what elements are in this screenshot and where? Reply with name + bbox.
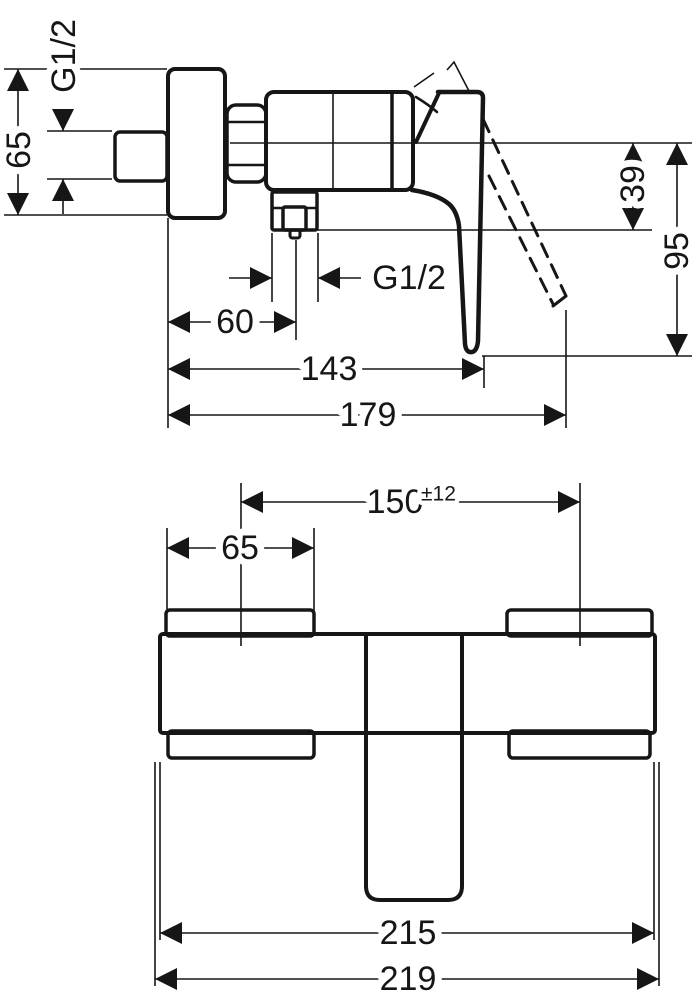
technical-drawing: G1/2 65 39 95 G1/2 60 143 [0, 0, 696, 1000]
dimension-center-distance: 150 ±12 [241, 483, 580, 522]
drawing-page: G1/2 65 39 95 G1/2 60 143 [0, 0, 696, 1000]
dim-label-150: 150 [367, 483, 424, 521]
mixer-body-bar [160, 634, 655, 733]
dim-label-150-tolerance: ±12 [421, 483, 456, 506]
dim-label-65-front: 65 [221, 529, 259, 567]
valve-body [266, 92, 413, 190]
dimension-total-depth: 179 [168, 396, 566, 434]
dimension-depth-to-handle: 143 [168, 350, 484, 388]
dimension-handle-below-center: 95 [658, 143, 696, 356]
dim-label-219: 219 [380, 960, 437, 998]
dimension-outlet-offset: 60 [168, 303, 296, 341]
dimension-flange-height: 65 [0, 69, 38, 215]
dim-label-inlet-thread: G1/2 [45, 19, 83, 93]
lever-handle-open-dashed [483, 119, 566, 306]
dim-label-60: 60 [216, 303, 254, 341]
dim-label-215: 215 [380, 914, 437, 952]
dimension-inlet-thread: G1/2 [45, 19, 83, 214]
right-escutcheon-bottom [509, 731, 650, 758]
dim-label-65-side: 65 [0, 131, 38, 169]
handle-grip-outline [414, 73, 434, 87]
dimension-outlet-thread: G1/2 [229, 259, 446, 297]
front-view-drawing: 150 ±12 65 215 219 [155, 483, 659, 999]
dim-label-95: 95 [658, 232, 696, 270]
dim-label-179: 179 [340, 396, 397, 434]
dimension-outlet-below-center: 39 [614, 143, 652, 230]
dim-label-outlet-thread: G1/2 [372, 259, 446, 297]
dim-label-39: 39 [614, 165, 652, 203]
dimension-total-width: 219 [155, 960, 659, 998]
dimension-body-width: 215 [160, 914, 654, 952]
side-view-drawing: G1/2 65 39 95 G1/2 60 143 [0, 19, 696, 434]
dimension-escutcheon-width: 65 [167, 529, 314, 567]
lever-handle-closed [412, 62, 483, 352]
handle-grip-outline [447, 62, 470, 93]
wall-flange [168, 69, 225, 218]
lever-handle-front [366, 636, 462, 900]
left-escutcheon-bottom [168, 731, 314, 758]
inlet-connector [115, 132, 167, 181]
shower-outlet [272, 192, 317, 238]
dim-label-143: 143 [301, 350, 358, 388]
